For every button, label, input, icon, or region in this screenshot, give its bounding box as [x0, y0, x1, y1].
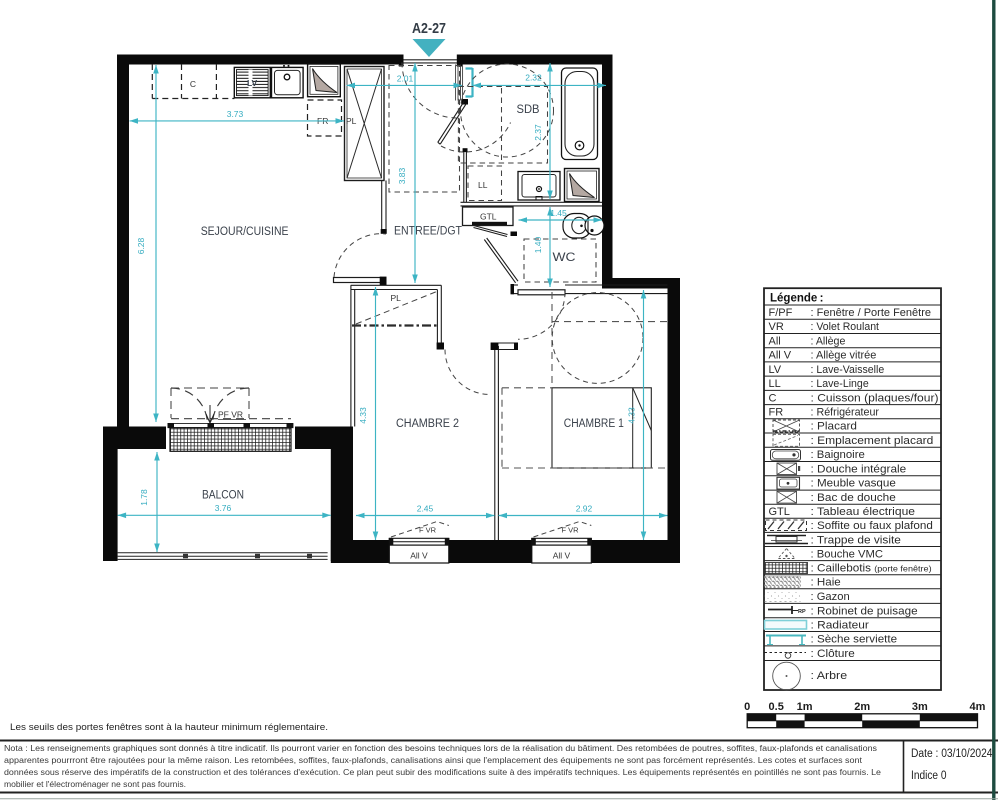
svg-text:: Tableau électrique: : Tableau électrique	[811, 506, 916, 518]
svg-text:: Lave-Vaisselle: : Lave-Vaisselle	[811, 364, 885, 376]
svg-text:LL: LL	[478, 180, 488, 190]
svg-text:3.73: 3.73	[227, 109, 244, 119]
svg-text:GTL: GTL	[480, 212, 497, 222]
svg-text:All V: All V	[769, 350, 792, 362]
svg-text:LL: LL	[769, 378, 781, 390]
svg-text:apparentes pourrront être rajo: apparentes pourrront être rajoutées pour…	[4, 755, 863, 765]
svg-text:0: 0	[744, 701, 750, 713]
svg-text:2.32: 2.32	[525, 73, 542, 83]
svg-text:CHAMBRE 1: CHAMBRE 1	[564, 418, 624, 430]
svg-text:: Réfrigérateur: : Réfrigérateur	[811, 407, 880, 419]
svg-text:SEJOUR/CUISINE: SEJOUR/CUISINE	[201, 226, 289, 238]
svg-text:: Bouche VMC: : Bouche VMC	[811, 548, 884, 560]
svg-text:: Caillebotis (porte fenêtre): : Caillebotis (porte fenêtre)	[811, 562, 932, 574]
svg-text:4.33: 4.33	[627, 407, 637, 424]
svg-text:PF VR: PF VR	[218, 410, 243, 420]
svg-text:GTL: GTL	[769, 506, 790, 518]
svg-text:: Bac de douche: : Bac de douche	[811, 492, 896, 504]
svg-text:Les seuils des portes fenêtres: Les seuils des portes fenêtres sont à la…	[10, 722, 328, 733]
svg-text:: Cuisson (plaques/four): : Cuisson (plaques/four)	[811, 392, 939, 404]
svg-text:: Soffite ou faux plafond: : Soffite ou faux plafond	[811, 520, 933, 532]
svg-text:: Trappe de visite: : Trappe de visite	[811, 534, 901, 546]
svg-text:Légende :: Légende :	[770, 293, 823, 305]
svg-text:2m: 2m	[854, 701, 870, 713]
svg-text:PL: PL	[346, 116, 357, 126]
svg-text:Nota : Les renseignements grap: Nota : Les renseignements graphiques son…	[4, 743, 877, 753]
svg-text:1.78: 1.78	[139, 489, 149, 506]
svg-text:1m: 1m	[797, 701, 813, 713]
svg-text:: Allège vitrée: : Allège vitrée	[811, 350, 877, 362]
svg-text:: Lave-Linge: : Lave-Linge	[811, 378, 869, 390]
svg-text:BALCON: BALCON	[202, 490, 244, 502]
svg-text:SDB: SDB	[517, 104, 540, 116]
svg-text:All: All	[769, 335, 781, 347]
svg-text:6.28: 6.28	[136, 237, 146, 254]
svg-text:2.01: 2.01	[397, 74, 414, 84]
svg-text:mobilier et l'électroménager n: mobilier et l'électroménager ne sont pas…	[4, 779, 186, 789]
svg-text:: Allège: : Allège	[811, 335, 846, 347]
svg-text:4m: 4m	[970, 701, 986, 713]
svg-text:: Haie: : Haie	[811, 577, 841, 589]
svg-text:F VR: F VR	[419, 526, 437, 535]
svg-text:C: C	[769, 392, 777, 404]
svg-text:: Gazon: : Gazon	[811, 591, 850, 603]
svg-text:WC: WC	[553, 252, 576, 264]
svg-text:: Arbre: : Arbre	[811, 670, 848, 682]
svg-text:: Sèche serviette: : Sèche serviette	[811, 634, 898, 646]
svg-text:4.33: 4.33	[358, 407, 368, 424]
svg-text:Date : 03/10/2024: Date : 03/10/2024	[911, 748, 993, 760]
svg-text:3m: 3m	[912, 701, 928, 713]
svg-text:VR: VR	[769, 321, 784, 333]
svg-text:: Douche intégrale: : Douche intégrale	[811, 463, 907, 475]
svg-text:F VR: F VR	[562, 526, 580, 535]
svg-text:: Radiateur: : Radiateur	[811, 619, 870, 631]
svg-text:LV: LV	[769, 364, 782, 376]
svg-text:2.92: 2.92	[576, 504, 593, 514]
svg-text:2.45: 2.45	[417, 504, 434, 514]
svg-text:All V: All V	[553, 551, 571, 561]
svg-text:3.83: 3.83	[397, 167, 407, 184]
svg-text:All V: All V	[410, 551, 428, 561]
svg-text:: Volet Roulant: : Volet Roulant	[811, 321, 880, 333]
svg-text:A2-27: A2-27	[412, 20, 446, 37]
svg-text:: Clôture: : Clôture	[811, 648, 855, 660]
svg-text:1.45: 1.45	[550, 208, 567, 218]
svg-text:Indice 0: Indice 0	[911, 770, 947, 782]
svg-text:3.76: 3.76	[215, 503, 232, 513]
svg-text:F/PF: F/PF	[769, 307, 793, 319]
svg-text:2.37: 2.37	[533, 124, 543, 141]
svg-text:: Meuble vasque: : Meuble vasque	[811, 478, 896, 490]
svg-text:: Emplacement placard: : Emplacement placard	[811, 435, 934, 447]
svg-text:: Placard: : Placard	[811, 421, 858, 433]
svg-text:FR: FR	[769, 407, 784, 419]
svg-text:: Fenêtre / Porte Fenêtre: : Fenêtre / Porte Fenêtre	[811, 307, 932, 319]
svg-text:ENTREE/DGT: ENTREE/DGT	[394, 226, 462, 238]
svg-text:1.40: 1.40	[533, 236, 543, 253]
svg-text:: Robinet de puisage: : Robinet de puisage	[811, 605, 918, 617]
svg-text:CHAMBRE 2: CHAMBRE 2	[396, 418, 459, 430]
svg-text:C: C	[190, 79, 196, 89]
svg-text:0.5: 0.5	[769, 701, 784, 713]
svg-text:données sous réserve des impér: données sous réserve des impératifs de l…	[4, 767, 881, 777]
svg-text:RP: RP	[798, 609, 806, 615]
svg-text:LV: LV	[247, 78, 258, 88]
svg-text:PL: PL	[391, 293, 402, 303]
svg-text:: Baignoire: : Baignoire	[811, 449, 865, 461]
